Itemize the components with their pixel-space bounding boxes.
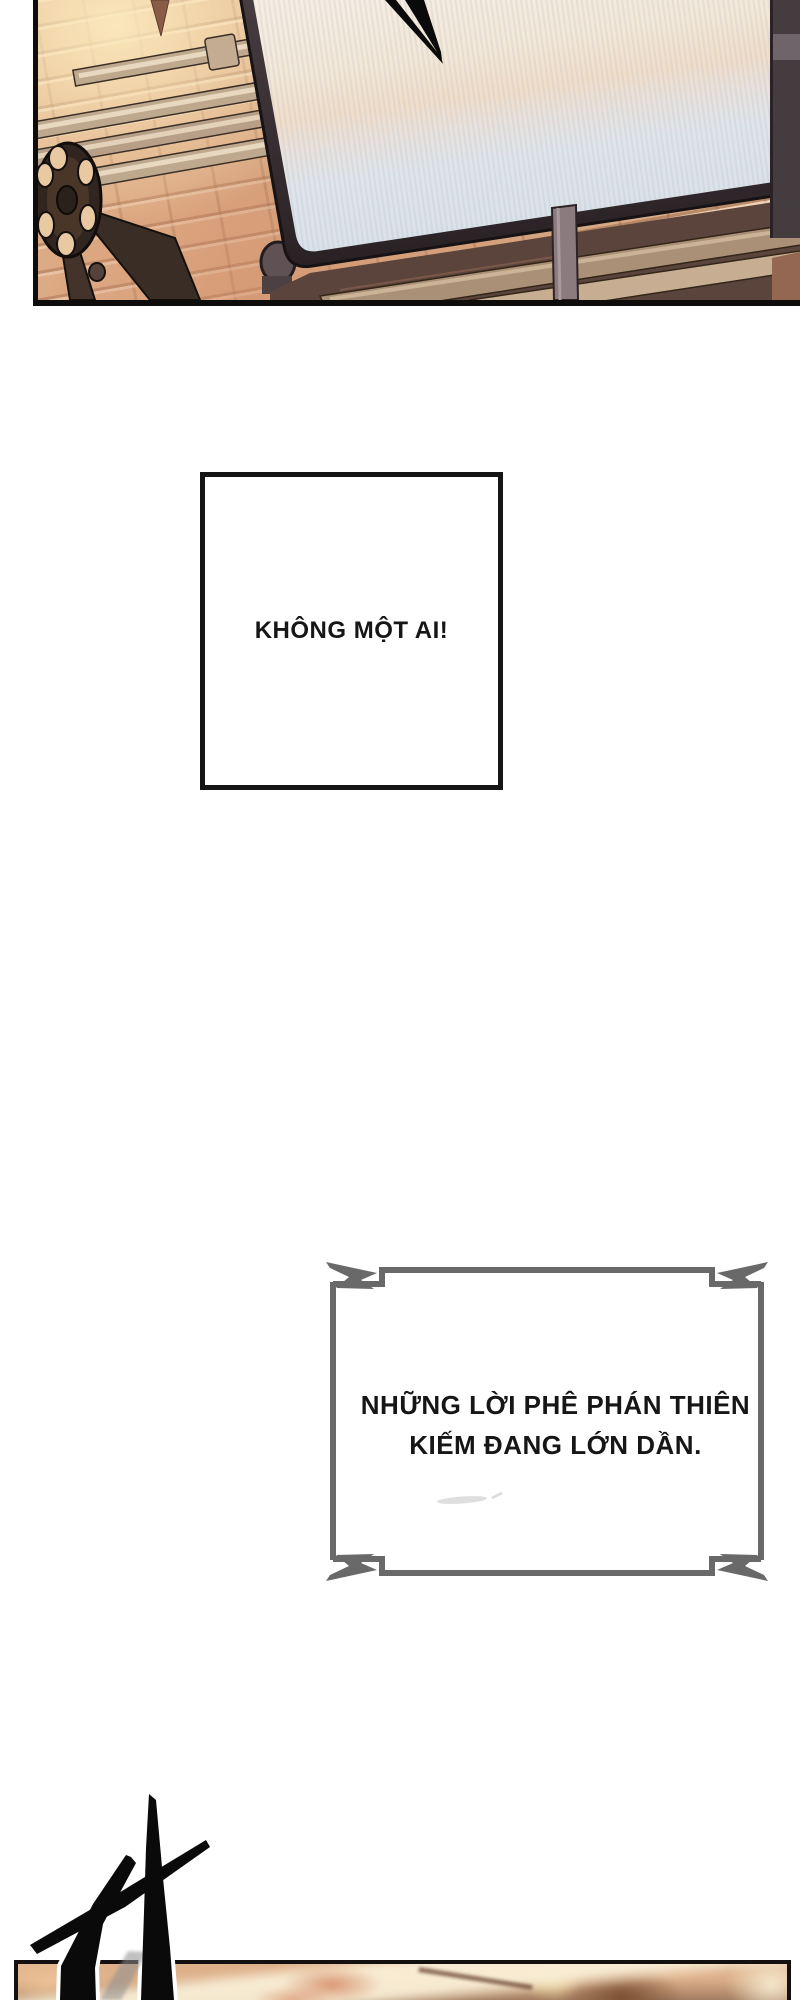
speech-box-1-text: KHÔNG MỘT AI! (255, 617, 449, 645)
speech-box-2: NHỮNG LỜI PHÊ PHÁN THIÊN KIẾM ĐANG LỚN D… (339, 1290, 758, 1560)
comic-page: KHÔNG MỘT AI! NHỮNG LỜI PHÊ PHÁN THIÊN K… (0, 0, 800, 2000)
panel-top-artwork (38, 0, 800, 300)
sword-slash-strokes (0, 1780, 300, 2000)
right-dark-band (770, 0, 800, 238)
speech-box-2-text: NHỮNG LỜI PHÊ PHÁN THIÊN KIẾM ĐANG LỚN D… (361, 1385, 750, 1465)
panel-top (33, 0, 800, 306)
hanging-wedge (151, 0, 169, 36)
speech-box-2-line1: NHỮNG LỜI PHÊ PHÁN THIÊN (361, 1390, 750, 1420)
speech-box-2-line2: KIẾM ĐANG LỚN DẦN. (409, 1430, 702, 1460)
speech-box-1: KHÔNG MỘT AI! (200, 472, 503, 790)
